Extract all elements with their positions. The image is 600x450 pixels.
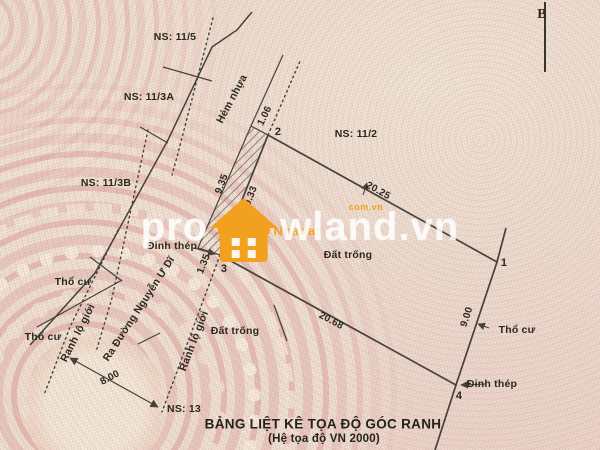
dimension-arrow-9-00 bbox=[478, 324, 489, 328]
neighbor-label-ns-11-3b: NS: 11/3B bbox=[81, 177, 131, 189]
fence-tick-5 bbox=[274, 305, 287, 341]
road-boundary-dotted-northeast bbox=[268, 59, 301, 135]
area-label-residential-west-2: Thổ cư bbox=[25, 331, 62, 343]
neighbor-label-ns-11-3a: NS: 11/3A bbox=[124, 91, 174, 103]
point-label-2: 2 bbox=[275, 126, 281, 138]
footer-title: BẢNG LIỆT KÊ TỌA ĐỘ GÓC RANH bbox=[205, 417, 442, 432]
area-label-vacant-south: Đất trống bbox=[211, 325, 259, 337]
street-direction-line bbox=[138, 333, 160, 344]
area-label-residential-east: Thổ cư bbox=[499, 324, 536, 336]
area-label-residential-west-1: Thổ cư bbox=[55, 276, 92, 288]
neighbor-label-ns-11-2: NS: 11/2 bbox=[335, 128, 377, 140]
neighbor-label-ns-11-5: NS: 11/5 bbox=[154, 31, 196, 43]
fence-tick-1 bbox=[163, 67, 212, 81]
steel-pin-label-point-3: Đinh thép bbox=[147, 240, 197, 252]
survey-drawing: NS: 11/5 NS: 11/3A NS: 11/3B NS: 11/2 NS… bbox=[0, 0, 600, 450]
area-label-vacant-inside: Đất trống bbox=[324, 249, 372, 261]
watermark-tld: com.vn bbox=[349, 202, 384, 212]
point-label-4: 4 bbox=[456, 390, 462, 402]
steel-pin-label-point-4: Đinh thép bbox=[467, 378, 517, 390]
neighbor-label-ns-13: NS: 13 bbox=[167, 403, 201, 415]
road-width-dimension-line bbox=[70, 358, 158, 407]
north-label: B bbox=[537, 7, 547, 23]
footer-subtitle: (Hệ tọa độ VN 2000) bbox=[268, 433, 380, 445]
fence-tick-2 bbox=[140, 127, 168, 143]
road-boundary-dotted-west-middle bbox=[96, 130, 148, 352]
watermark-orange-text: Nhadat bbox=[273, 224, 320, 239]
point-label-3: 3 bbox=[221, 263, 227, 275]
point-label-1: 1 bbox=[501, 257, 507, 269]
